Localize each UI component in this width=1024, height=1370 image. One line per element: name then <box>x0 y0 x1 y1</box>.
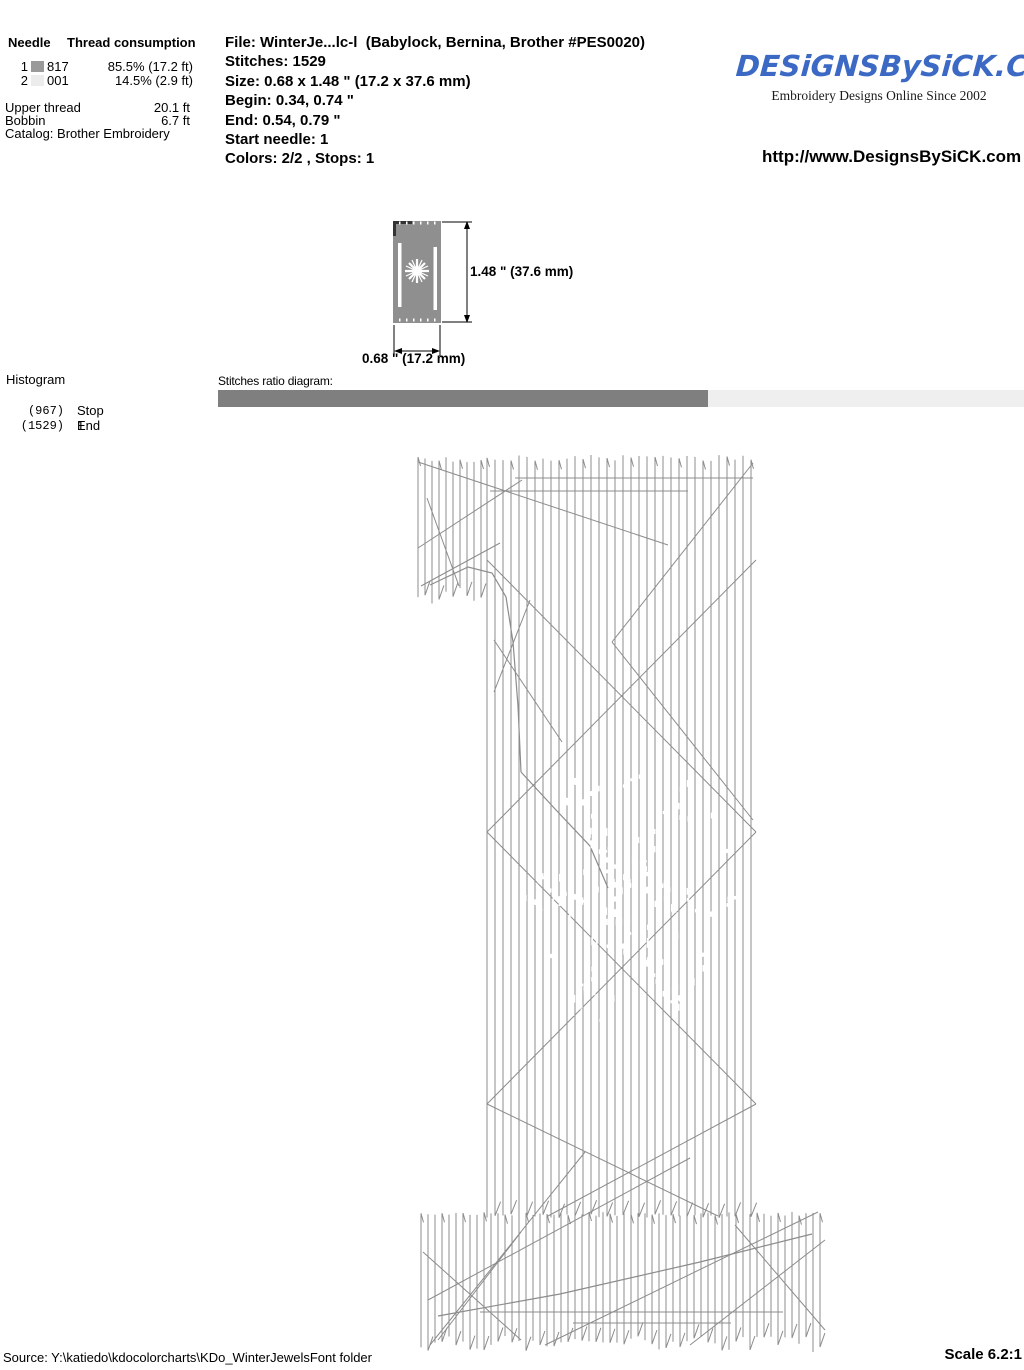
scale-label: Scale 6.2:1 <box>944 1346 1022 1363</box>
histogram-count: (967) <box>18 404 64 418</box>
logo-tagline: Embroidery Designs Online Since 2002 <box>736 88 1022 104</box>
height-dimension-label: 1.48 " (37.6 mm) <box>470 264 573 279</box>
thread-usage: 14.5% (2.9 ft) <box>100 73 193 88</box>
stitch-ratio-bar <box>218 390 1024 407</box>
design-thumbnail-figure <box>355 215 625 370</box>
needle-column-header: Needle <box>8 35 51 50</box>
histogram-count: (1529) <box>18 419 64 433</box>
thread-color-swatch <box>31 61 44 72</box>
end-line: End: 0.54, 0.79 " <box>225 111 645 130</box>
thread-color-swatch <box>31 75 44 86</box>
width-dimension-label: 0.68 " (17.2 mm) <box>362 351 465 366</box>
ratio-light-segment <box>708 390 1024 407</box>
file-info-block: File: WinterJe...lc-l (Babylock, Bernina… <box>225 33 645 169</box>
site-url: http://www.DesignsBySiCK.com <box>762 147 1024 167</box>
thread-code: 001 <box>47 73 69 88</box>
needle-number: 2 <box>10 73 28 88</box>
colors-stops-line: Colors: 2/2 , Stops: 1 <box>225 149 645 168</box>
thread-code: 817 <box>47 59 69 74</box>
consumption-column-header: Thread consumption <box>67 35 196 50</box>
ratio-dark-segment <box>218 390 708 407</box>
file-name-line: File: WinterJe...lc-l (Babylock, Bernina… <box>225 33 645 52</box>
histogram-title: Histogram <box>6 372 65 387</box>
designsbysick-logo: DESiGNSBySiCK.COM <box>735 49 1023 83</box>
start-needle-line: Start needle: 1 <box>225 130 645 149</box>
thread-usage: 85.5% (17.2 ft) <box>100 59 193 74</box>
stitch-diagram-svg <box>398 446 838 1361</box>
begin-line: Begin: 0.34, 0.74 " <box>225 91 645 110</box>
stitch-count-line: Stitches: 1529 <box>225 52 645 71</box>
size-line: Size: 0.68 x 1.48 " (17.2 x 37.6 mm) <box>225 72 645 91</box>
source-path: Source: Y:\katiedo\kdocolorcharts\KDo_Wi… <box>3 1350 372 1365</box>
stitch-ratio-label: Stitches ratio diagram: <box>218 374 333 388</box>
needle-number: 1 <box>10 59 28 74</box>
catalog-line: Catalog: Brother Embroidery <box>5 126 170 141</box>
histogram-label: End <box>77 418 100 433</box>
